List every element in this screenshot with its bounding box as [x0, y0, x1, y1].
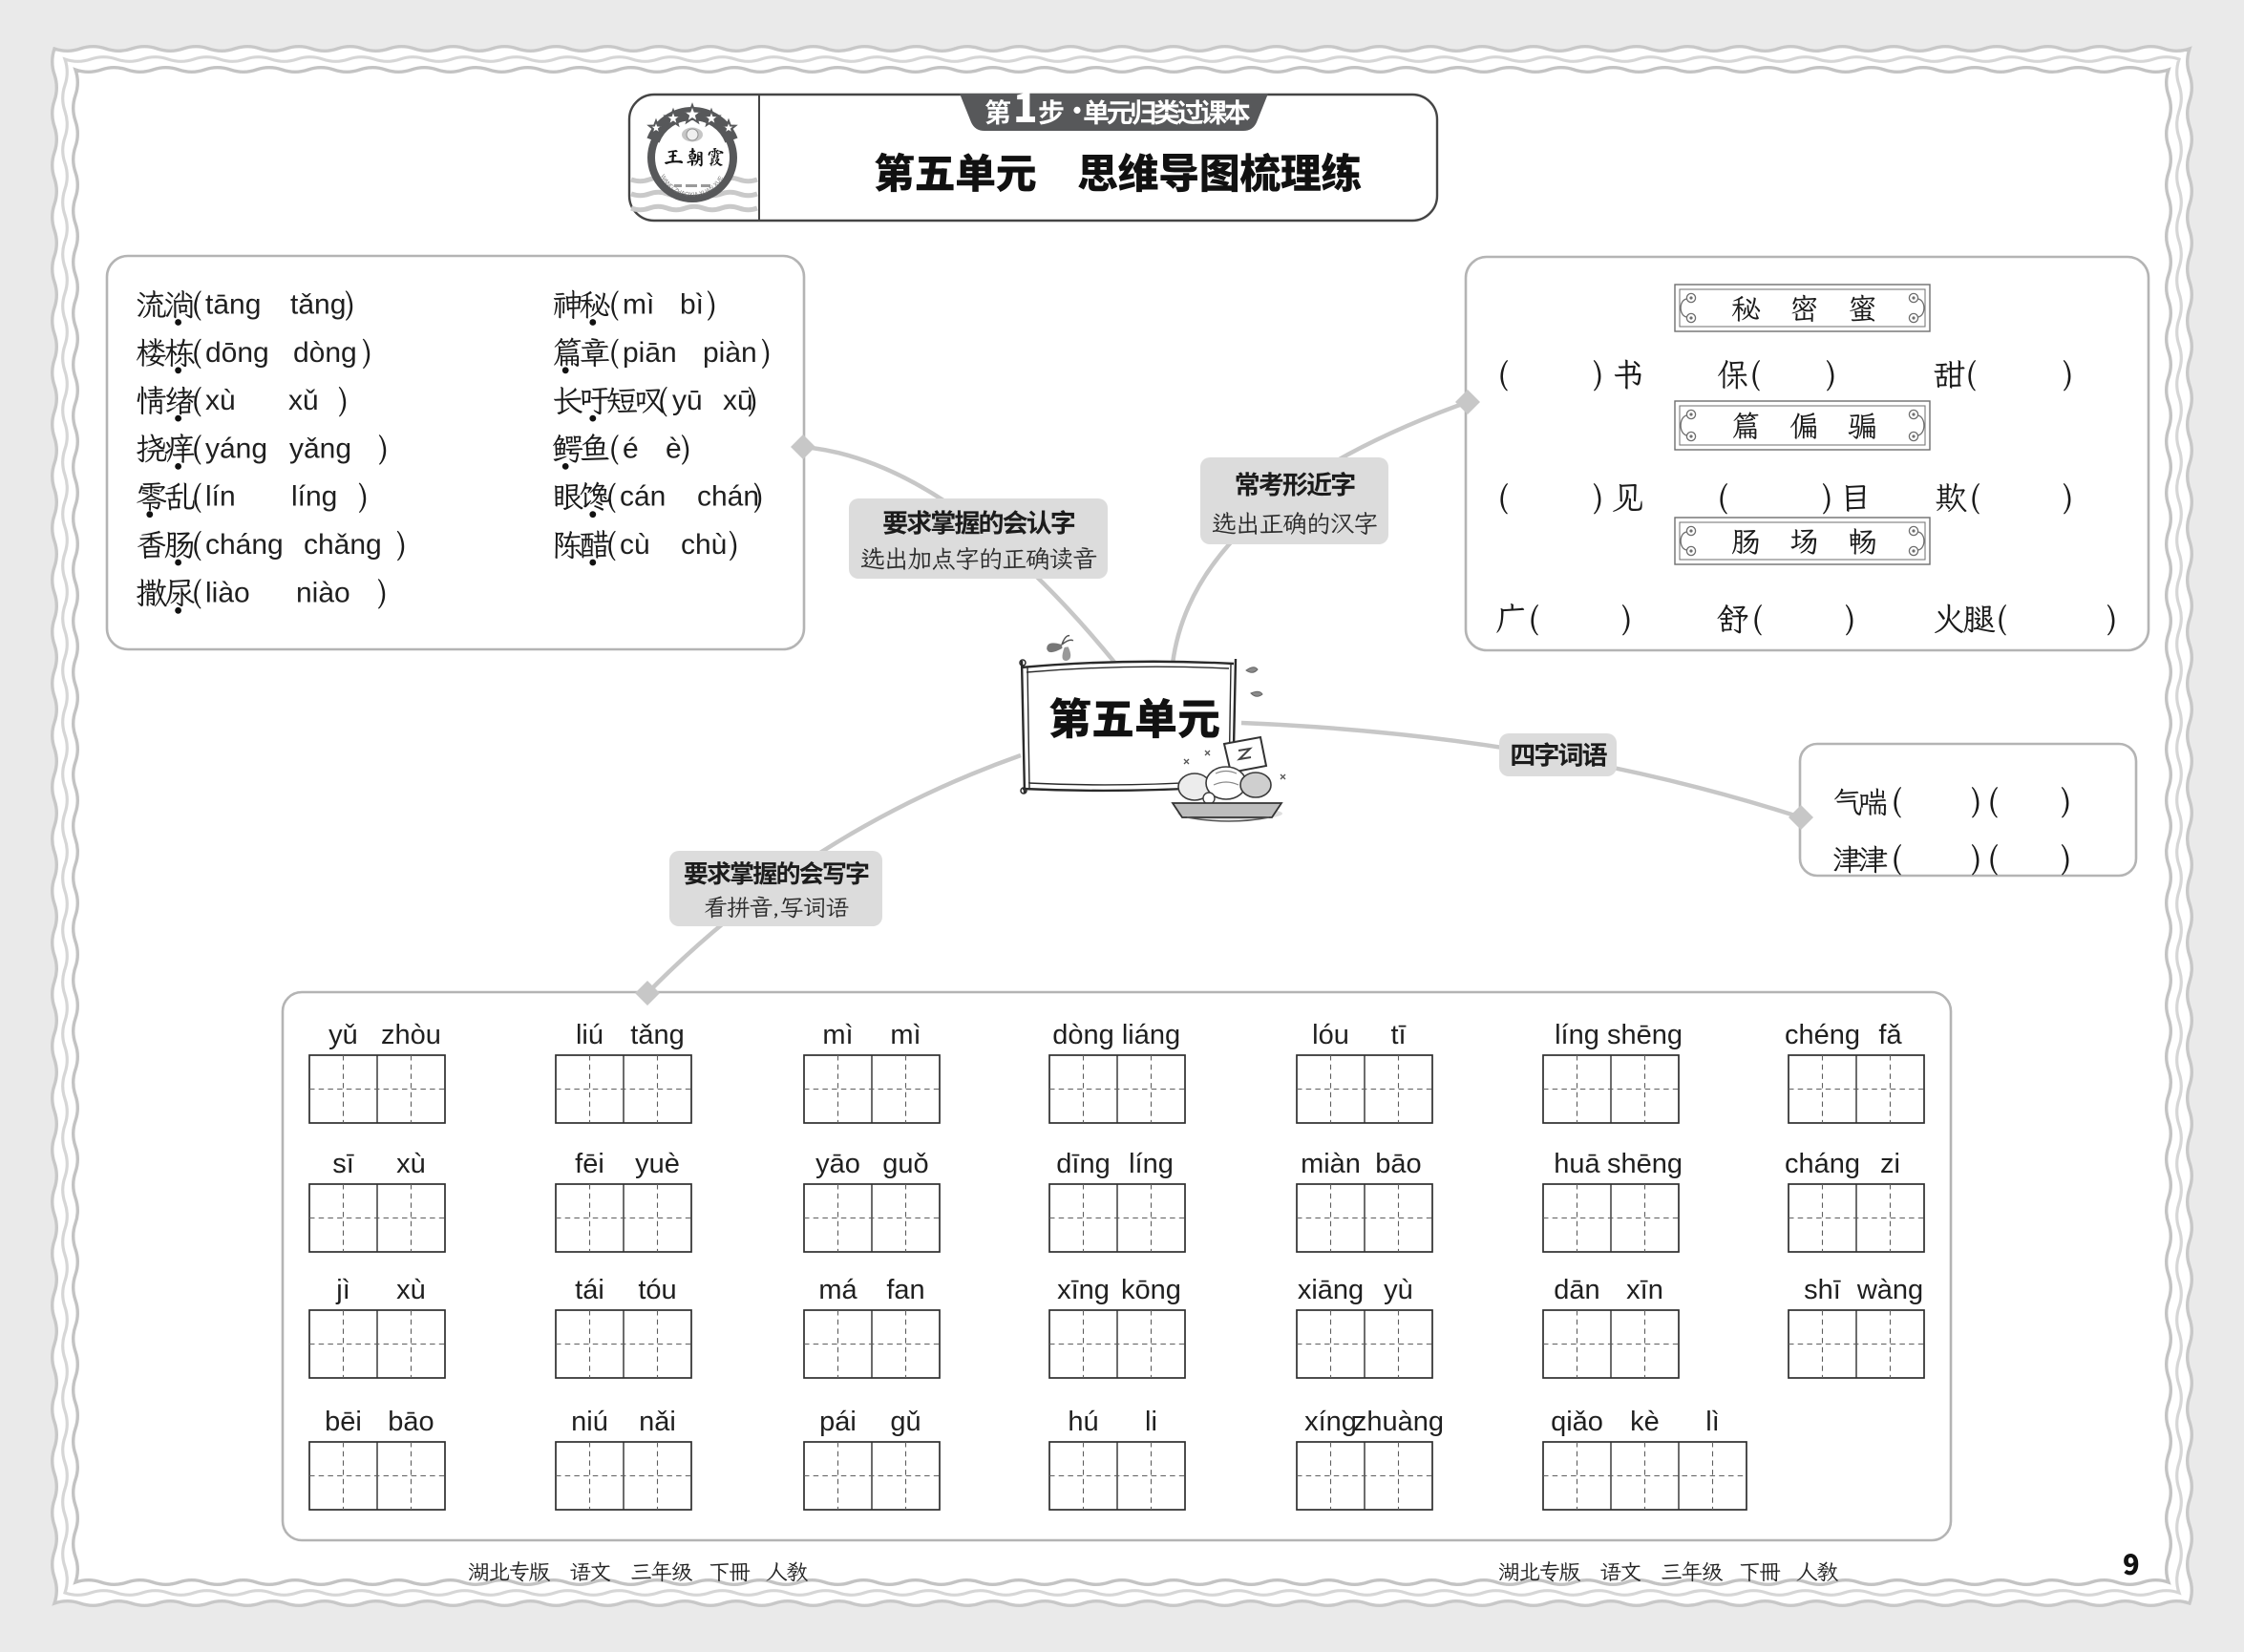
svg-text:liú: liú	[576, 1020, 603, 1050]
svg-text:pái: pái	[819, 1407, 857, 1437]
svg-text:niú: niú	[571, 1407, 608, 1437]
svg-text:qiǎo: qiǎo	[1551, 1407, 1603, 1437]
svg-text:bāo: bāo	[388, 1407, 434, 1437]
svg-text:piān: piān	[623, 337, 677, 369]
svg-text:huā: huā	[1554, 1149, 1600, 1179]
svg-text:niào: niào	[296, 577, 350, 608]
svg-text:lín: lín	[205, 481, 236, 513]
svg-text:yāo: yāo	[815, 1149, 860, 1179]
svg-text:yǔ: yǔ	[328, 1020, 358, 1050]
svg-text:zhuàng: zhuàng	[1353, 1407, 1444, 1437]
svg-text:yuè: yuè	[635, 1149, 680, 1179]
svg-text:piàn: piàn	[703, 337, 757, 369]
svg-text:cháng: cháng	[205, 529, 284, 561]
svg-text:zi: zi	[1880, 1149, 1900, 1179]
svg-text:kōng: kōng	[1121, 1275, 1181, 1305]
svg-text:líng: líng	[291, 481, 337, 513]
svg-text:xǔ: xǔ	[288, 385, 319, 416]
svg-text:chǎng: chǎng	[304, 529, 382, 561]
svg-text:líng: líng	[1555, 1020, 1599, 1050]
svg-text:xiāng: xiāng	[1298, 1275, 1364, 1305]
svg-text:xīng: xīng	[1057, 1275, 1110, 1305]
svg-text:fēi: fēi	[575, 1149, 604, 1179]
svg-text:jì: jì	[335, 1275, 350, 1305]
svg-text:miàn: miàn	[1301, 1149, 1361, 1179]
svg-text:wàng: wàng	[1856, 1275, 1923, 1305]
svg-text:xù: xù	[396, 1275, 426, 1305]
svg-text:tāng: tāng	[205, 289, 261, 321]
svg-text:dīng: dīng	[1056, 1149, 1110, 1179]
svg-text:liào: liào	[205, 577, 250, 608]
svg-text:yǎng: yǎng	[289, 433, 351, 464]
svg-text:guǒ: guǒ	[882, 1149, 928, 1179]
svg-text:shēng: shēng	[1607, 1020, 1683, 1050]
svg-text:cù: cù	[620, 529, 650, 561]
svg-text:mì: mì	[623, 289, 654, 321]
svg-text:líng: líng	[1129, 1149, 1174, 1179]
svg-text:dòng: dòng	[1052, 1020, 1114, 1050]
svg-text:gǔ: gǔ	[890, 1407, 921, 1437]
svg-text:yù: yù	[1384, 1275, 1413, 1305]
svg-text:cán: cán	[620, 481, 666, 513]
svg-text:kè: kè	[1630, 1407, 1660, 1437]
svg-text:zhòu: zhòu	[381, 1020, 441, 1050]
svg-text:yū: yū	[672, 385, 703, 416]
svg-text:xū: xū	[723, 385, 753, 416]
svg-text:fǎ: fǎ	[1878, 1020, 1902, 1050]
svg-text:yáng: yáng	[205, 433, 267, 464]
svg-text:chéng: chéng	[1785, 1020, 1860, 1050]
svg-text:é: é	[623, 433, 639, 464]
svg-text:shī: shī	[1804, 1275, 1841, 1305]
svg-text:liáng: liáng	[1122, 1020, 1180, 1050]
svg-text:nǎi: nǎi	[639, 1407, 676, 1437]
svg-text:dōng: dōng	[205, 337, 269, 369]
svg-text:bì: bì	[680, 289, 704, 321]
svg-text:tóu: tóu	[638, 1275, 676, 1305]
svg-text:dòng: dòng	[293, 337, 357, 369]
svg-text:shēng: shēng	[1607, 1149, 1683, 1179]
svg-text:sī: sī	[332, 1149, 354, 1179]
svg-text:bēi: bēi	[325, 1407, 362, 1437]
svg-text:li: li	[1145, 1407, 1157, 1437]
svg-text:má: má	[818, 1275, 857, 1305]
svg-text:xù: xù	[205, 385, 236, 416]
svg-text:chán: chán	[697, 481, 759, 513]
svg-text:tǎng: tǎng	[290, 289, 346, 321]
svg-text:xīn: xīn	[1626, 1275, 1663, 1305]
svg-text:dān: dān	[1554, 1275, 1599, 1305]
svg-text:fan: fan	[886, 1275, 924, 1305]
svg-text:bāo: bāo	[1375, 1149, 1421, 1179]
svg-text:tī: tī	[1390, 1020, 1406, 1050]
svg-text:cháng: cháng	[1785, 1149, 1860, 1179]
svg-text:mì: mì	[822, 1020, 853, 1050]
svg-text:xù: xù	[396, 1149, 426, 1179]
svg-text:xíng: xíng	[1304, 1407, 1357, 1437]
svg-text:tái: tái	[575, 1275, 604, 1305]
svg-text:chù: chù	[681, 529, 727, 561]
svg-text:lóu: lóu	[1312, 1020, 1349, 1050]
svg-text:lì: lì	[1705, 1407, 1720, 1437]
svg-text:tǎng: tǎng	[630, 1020, 684, 1050]
svg-text:è: è	[666, 433, 682, 464]
svg-text:hú: hú	[1068, 1407, 1098, 1437]
svg-text:mì: mì	[890, 1020, 921, 1050]
